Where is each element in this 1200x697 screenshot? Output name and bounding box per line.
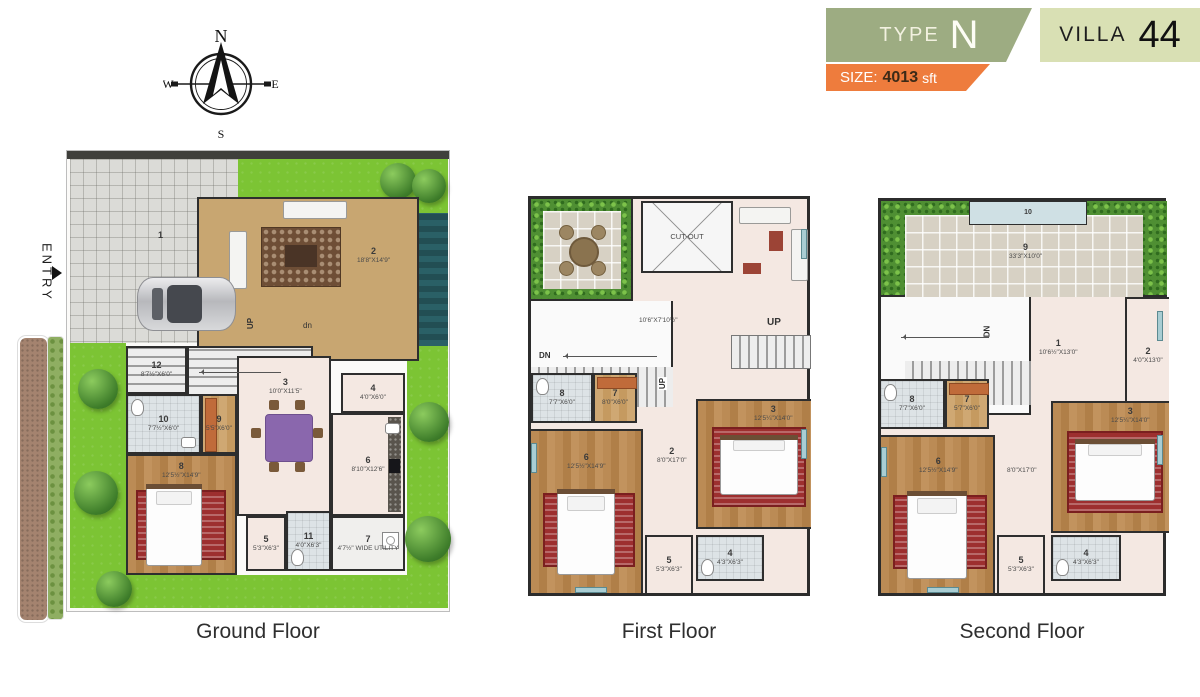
dress-9: 9 5'5"X6'0" <box>201 394 237 454</box>
ground-floor-plan: 1 UP 2 18'8"X14'9" <box>66 150 450 612</box>
villa-badge: VILLA 44 <box>1040 8 1200 62</box>
entry-marker: ENTRY <box>30 224 64 320</box>
corridor-f2: 8'0"X17'0" <box>1007 467 1037 474</box>
second-floor-title: Second Floor <box>878 620 1166 644</box>
cutout: CUT-OUT <box>641 201 733 273</box>
villa-number: 44 <box>1138 14 1180 57</box>
terrace-cutout: 10 <box>969 201 1087 225</box>
car <box>137 277 236 331</box>
lawn-right <box>407 346 448 608</box>
first-floor-plan: CUT-OUT DN UP UP 10'6"X7'10½" 8 7'7"X6 <box>528 196 810 596</box>
type-value: N <box>950 13 979 58</box>
lawn-bottom <box>70 575 408 608</box>
bedroom-f2-right: 3 12'5¼"X14'0" <box>1051 401 1169 533</box>
compass-west: W <box>163 77 174 91</box>
lawn-left <box>70 343 126 575</box>
pooja-room: 4 4'0"X6'0" <box>341 373 405 413</box>
dress-f1: 7 8'0"X6'0" <box>593 373 637 423</box>
dining-room: 3 10'0"X11'5" <box>237 356 331 516</box>
stair-dn-label-f2: DN <box>982 326 991 338</box>
bedroom-f2-left: 6 12'5½"X14'9" <box>881 435 995 593</box>
bedroom-ground: 8 12'5½"X14'9" <box>126 454 237 575</box>
ground-floor-title: Ground Floor <box>66 620 450 644</box>
stair-dn-label: DN <box>539 351 551 360</box>
toilet-f1: 4 4'3"X6'3" <box>696 535 764 581</box>
toilet-f2: 4 4'3"X6'3" <box>1051 535 1121 581</box>
villa-label: VILLA <box>1059 23 1126 47</box>
first-floor-title: First Floor <box>528 620 810 644</box>
type-label: TYPE <box>879 24 939 47</box>
utility: 7 4'7½" WIDE UTILITY <box>331 516 405 571</box>
terrace-up-label: UP <box>767 317 781 328</box>
hall-f2: 1 10'6½"X13'0" <box>1039 339 1078 356</box>
toilet-11: 11 4'0"X6'3" <box>286 511 331 571</box>
terrace-stair <box>731 335 811 369</box>
size-value: 4013 <box>883 69 919 87</box>
size-unit: sft <box>922 70 937 86</box>
second-floor-plan: 9 33'3"X10'0" 10 DN 1 10'6½"X13'0" 2 4'0… <box>878 198 1166 596</box>
passage-f1: 5 5'3"X6'3" <box>645 535 693 593</box>
type-badge: TYPE N <box>826 8 1032 62</box>
planter-strip <box>47 336 64 620</box>
corridor-f1: 2 8'0"X17'0" <box>657 447 687 464</box>
water-feature <box>419 213 448 346</box>
bedroom-f1-left: 6 12'5½"X14'9" <box>531 429 643 593</box>
compound-wall <box>67 151 449 159</box>
stair-up-label: UP <box>658 377 667 390</box>
stair-room-12: 12 8'7½"X6'0" <box>126 346 187 394</box>
bathroom-f2: 8 7'7"X6'0" <box>881 379 945 429</box>
bathroom-f1: 8 7'7"X6'0" <box>531 373 593 423</box>
living-room: 2 18'8"X14'9" UP dn <box>197 197 419 361</box>
floor-plan-sheet: TYPE N VILLA 44 SIZE: 4013 sft N E S W E… <box>0 0 1200 697</box>
bedroom-f1-right: 3 12'5¼"X14'0" <box>696 399 811 529</box>
compass-north: N <box>215 26 228 46</box>
road-strip <box>18 336 49 622</box>
passage-5: 5 5'3"X6'3" <box>246 516 286 571</box>
bathroom-10: 10 7'7½"X6'0" <box>126 394 201 454</box>
lobby-dim: 10'6"X7'10½" <box>639 317 678 324</box>
terrace: 9 33'3"X10'0" 10 <box>881 201 1167 297</box>
size-label: SIZE: <box>840 69 878 86</box>
compass-east: E <box>271 77 278 91</box>
living-dn-label: dn <box>303 321 312 330</box>
kitchen: 6 8'10"X12'6" <box>331 413 405 516</box>
compass-icon: N E S W <box>163 26 279 142</box>
compass-south: S <box>218 127 225 141</box>
lounge <box>733 201 811 301</box>
dress-f2: 7 5'7"X6'0" <box>945 379 989 429</box>
terrace-garden <box>531 199 633 301</box>
living-up-label: UP <box>246 318 255 329</box>
size-badge: SIZE: 4013 sft <box>826 64 990 91</box>
passage-f2: 5 5'3"X6'3" <box>997 535 1045 593</box>
